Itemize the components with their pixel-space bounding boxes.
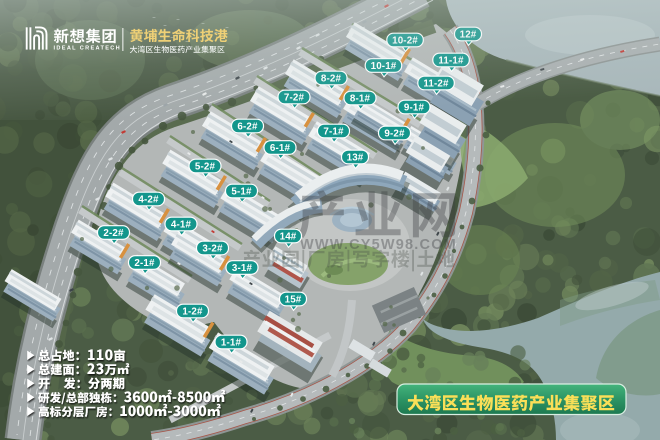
svg-text:7-1#: 7-1#	[323, 127, 344, 138]
svg-text:6-2#: 6-2#	[237, 122, 258, 133]
svg-text:9-2#: 9-2#	[384, 129, 405, 140]
svg-text:2-1#: 2-1#	[134, 258, 155, 269]
svg-text:4-2#: 4-2#	[138, 195, 159, 206]
svg-text:1-1#: 1-1#	[221, 338, 242, 349]
svg-text:15#: 15#	[285, 295, 302, 306]
svg-text:IDEAL CREATECH: IDEAL CREATECH	[54, 46, 122, 52]
svg-text:13#: 13#	[347, 153, 364, 164]
svg-text:3-2#: 3-2#	[202, 244, 223, 255]
svg-text:3-1#: 3-1#	[232, 263, 253, 274]
svg-text:5-1#: 5-1#	[231, 187, 252, 198]
svg-text:14#: 14#	[280, 232, 297, 243]
svg-text:1-2#: 1-2#	[182, 307, 203, 318]
svg-text:2-2#: 2-2#	[103, 228, 124, 239]
svg-text:5-2#: 5-2#	[195, 162, 216, 173]
svg-text:6-1#: 6-1#	[270, 143, 291, 154]
svg-text:4-1#: 4-1#	[171, 220, 192, 231]
svg-text:WWW.CY5W98.COM: WWW.CY5W98.COM	[300, 237, 457, 253]
